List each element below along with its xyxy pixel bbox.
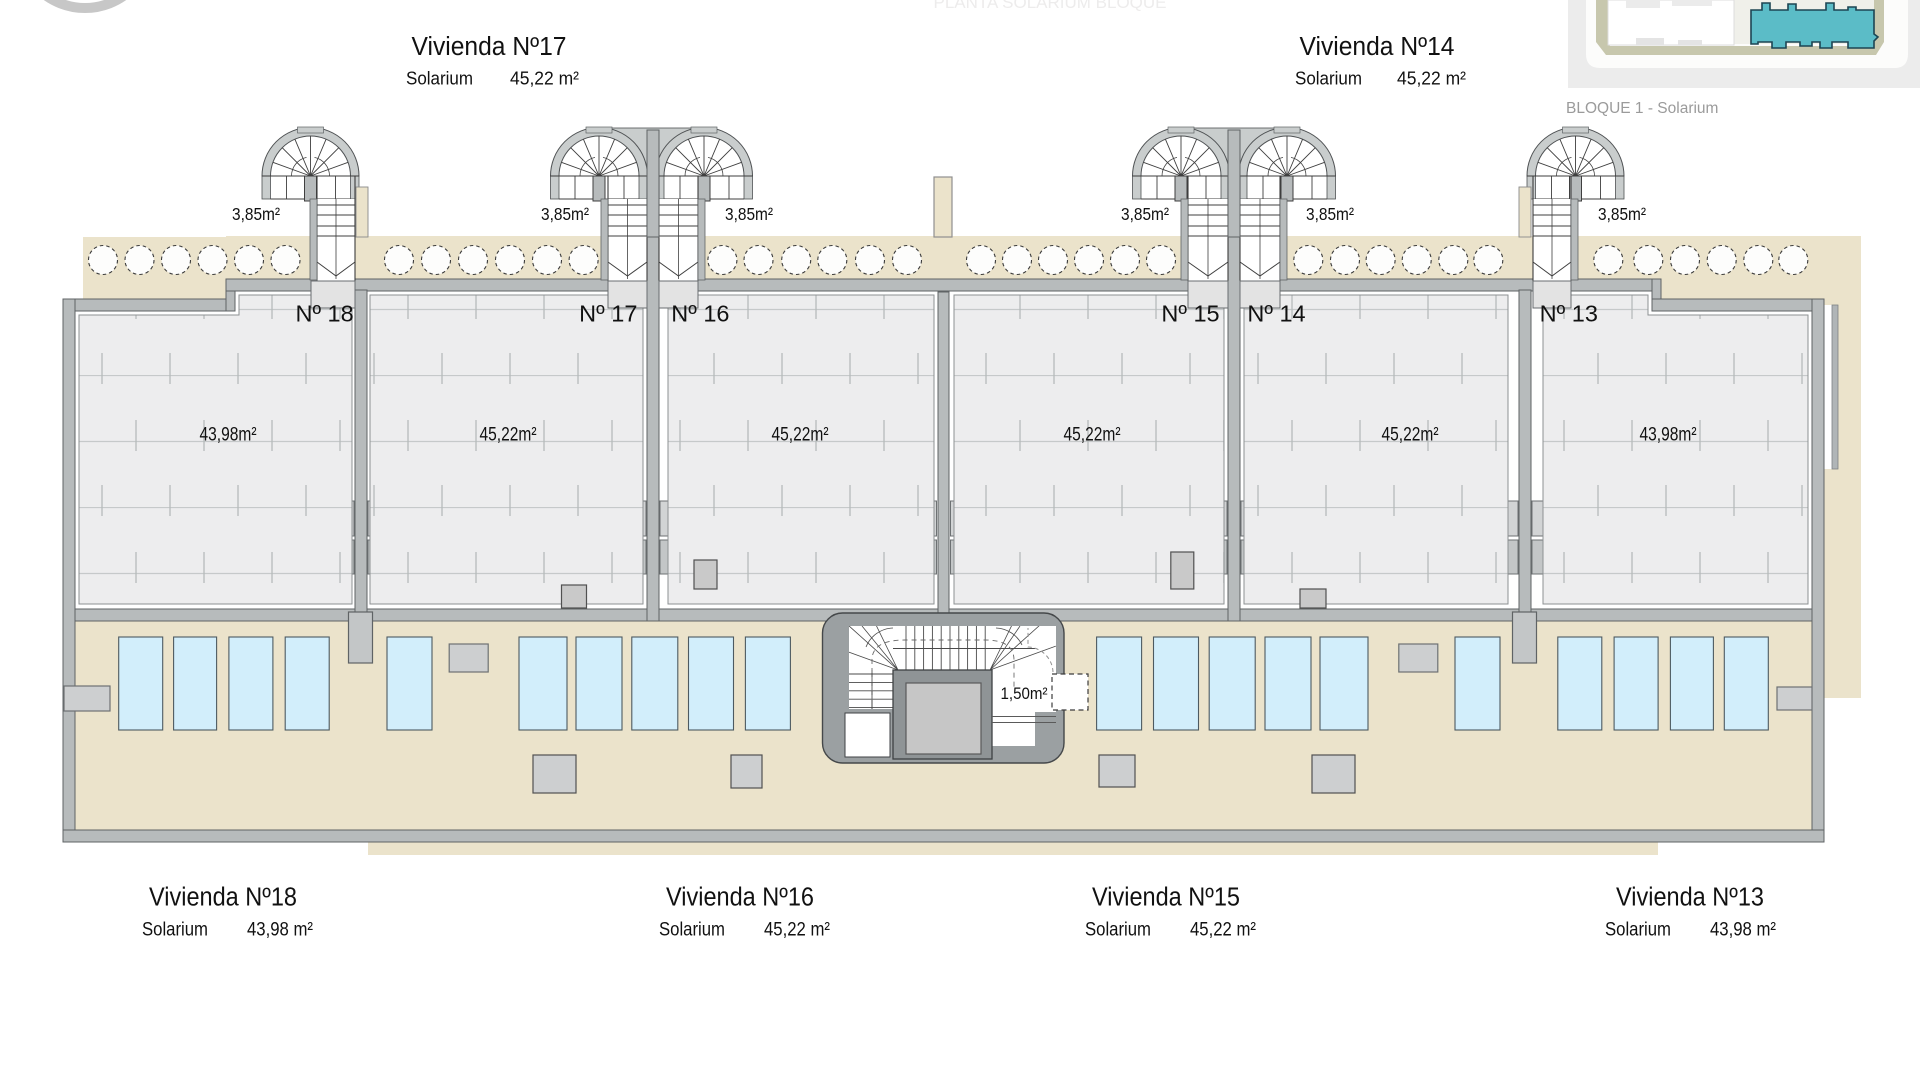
svg-text:Solarium: Solarium	[1605, 920, 1671, 941]
svg-text:Vivienda Nº13: Vivienda Nº13	[1616, 884, 1764, 912]
svg-text:1,50m²: 1,50m²	[1001, 685, 1048, 703]
svg-text:3,85m²: 3,85m²	[725, 204, 773, 224]
svg-text:Nº 16: Nº 16	[671, 301, 729, 327]
svg-text:Solarium: Solarium	[1085, 920, 1151, 941]
svg-text:PLANTA SOLARIUM BLOQUE: PLANTA SOLARIUM BLOQUE	[933, 0, 1166, 12]
svg-text:Vivienda Nº14: Vivienda Nº14	[1300, 33, 1455, 61]
svg-text:45,22m²: 45,22m²	[772, 425, 829, 446]
svg-text:Nº 18: Nº 18	[295, 301, 353, 327]
svg-text:45,22 m²: 45,22 m²	[510, 68, 579, 89]
svg-text:45,22m²: 45,22m²	[1064, 425, 1121, 446]
svg-text:3,85m²: 3,85m²	[541, 204, 589, 224]
svg-text:Solarium: Solarium	[142, 920, 208, 941]
svg-text:Solarium: Solarium	[1295, 68, 1362, 89]
svg-text:3,85m²: 3,85m²	[232, 204, 280, 224]
svg-text:Nº 17: Nº 17	[579, 301, 637, 327]
svg-text:43,98 m²: 43,98 m²	[247, 920, 313, 941]
svg-text:43,98m²: 43,98m²	[1640, 425, 1697, 446]
svg-text:45,22 m²: 45,22 m²	[1397, 68, 1466, 89]
svg-text:Vivienda Nº16: Vivienda Nº16	[666, 884, 814, 912]
svg-text:43,98m²: 43,98m²	[200, 425, 257, 446]
svg-text:3,85m²: 3,85m²	[1306, 204, 1354, 224]
svg-text:3,85m²: 3,85m²	[1598, 204, 1646, 224]
svg-text:45,22m²: 45,22m²	[480, 425, 537, 446]
svg-text:Nº 15: Nº 15	[1161, 301, 1219, 327]
svg-text:Nº 13: Nº 13	[1540, 301, 1598, 327]
svg-text:Vivienda Nº18: Vivienda Nº18	[149, 884, 297, 912]
svg-text:Solarium: Solarium	[406, 68, 473, 89]
svg-text:Solarium: Solarium	[659, 920, 725, 941]
svg-text:Nº 14: Nº 14	[1247, 301, 1305, 327]
svg-text:45,22 m²: 45,22 m²	[764, 920, 830, 941]
svg-text:Vivienda Nº17: Vivienda Nº17	[412, 33, 567, 61]
svg-text:45,22 m²: 45,22 m²	[1190, 920, 1256, 941]
svg-text:BLOQUE 1 - Solarium: BLOQUE 1 - Solarium	[1566, 100, 1718, 117]
svg-text:Vivienda Nº15: Vivienda Nº15	[1092, 884, 1240, 912]
svg-text:43,98 m²: 43,98 m²	[1710, 920, 1776, 941]
svg-text:3,85m²: 3,85m²	[1121, 204, 1169, 224]
svg-text:45,22m²: 45,22m²	[1382, 425, 1439, 446]
